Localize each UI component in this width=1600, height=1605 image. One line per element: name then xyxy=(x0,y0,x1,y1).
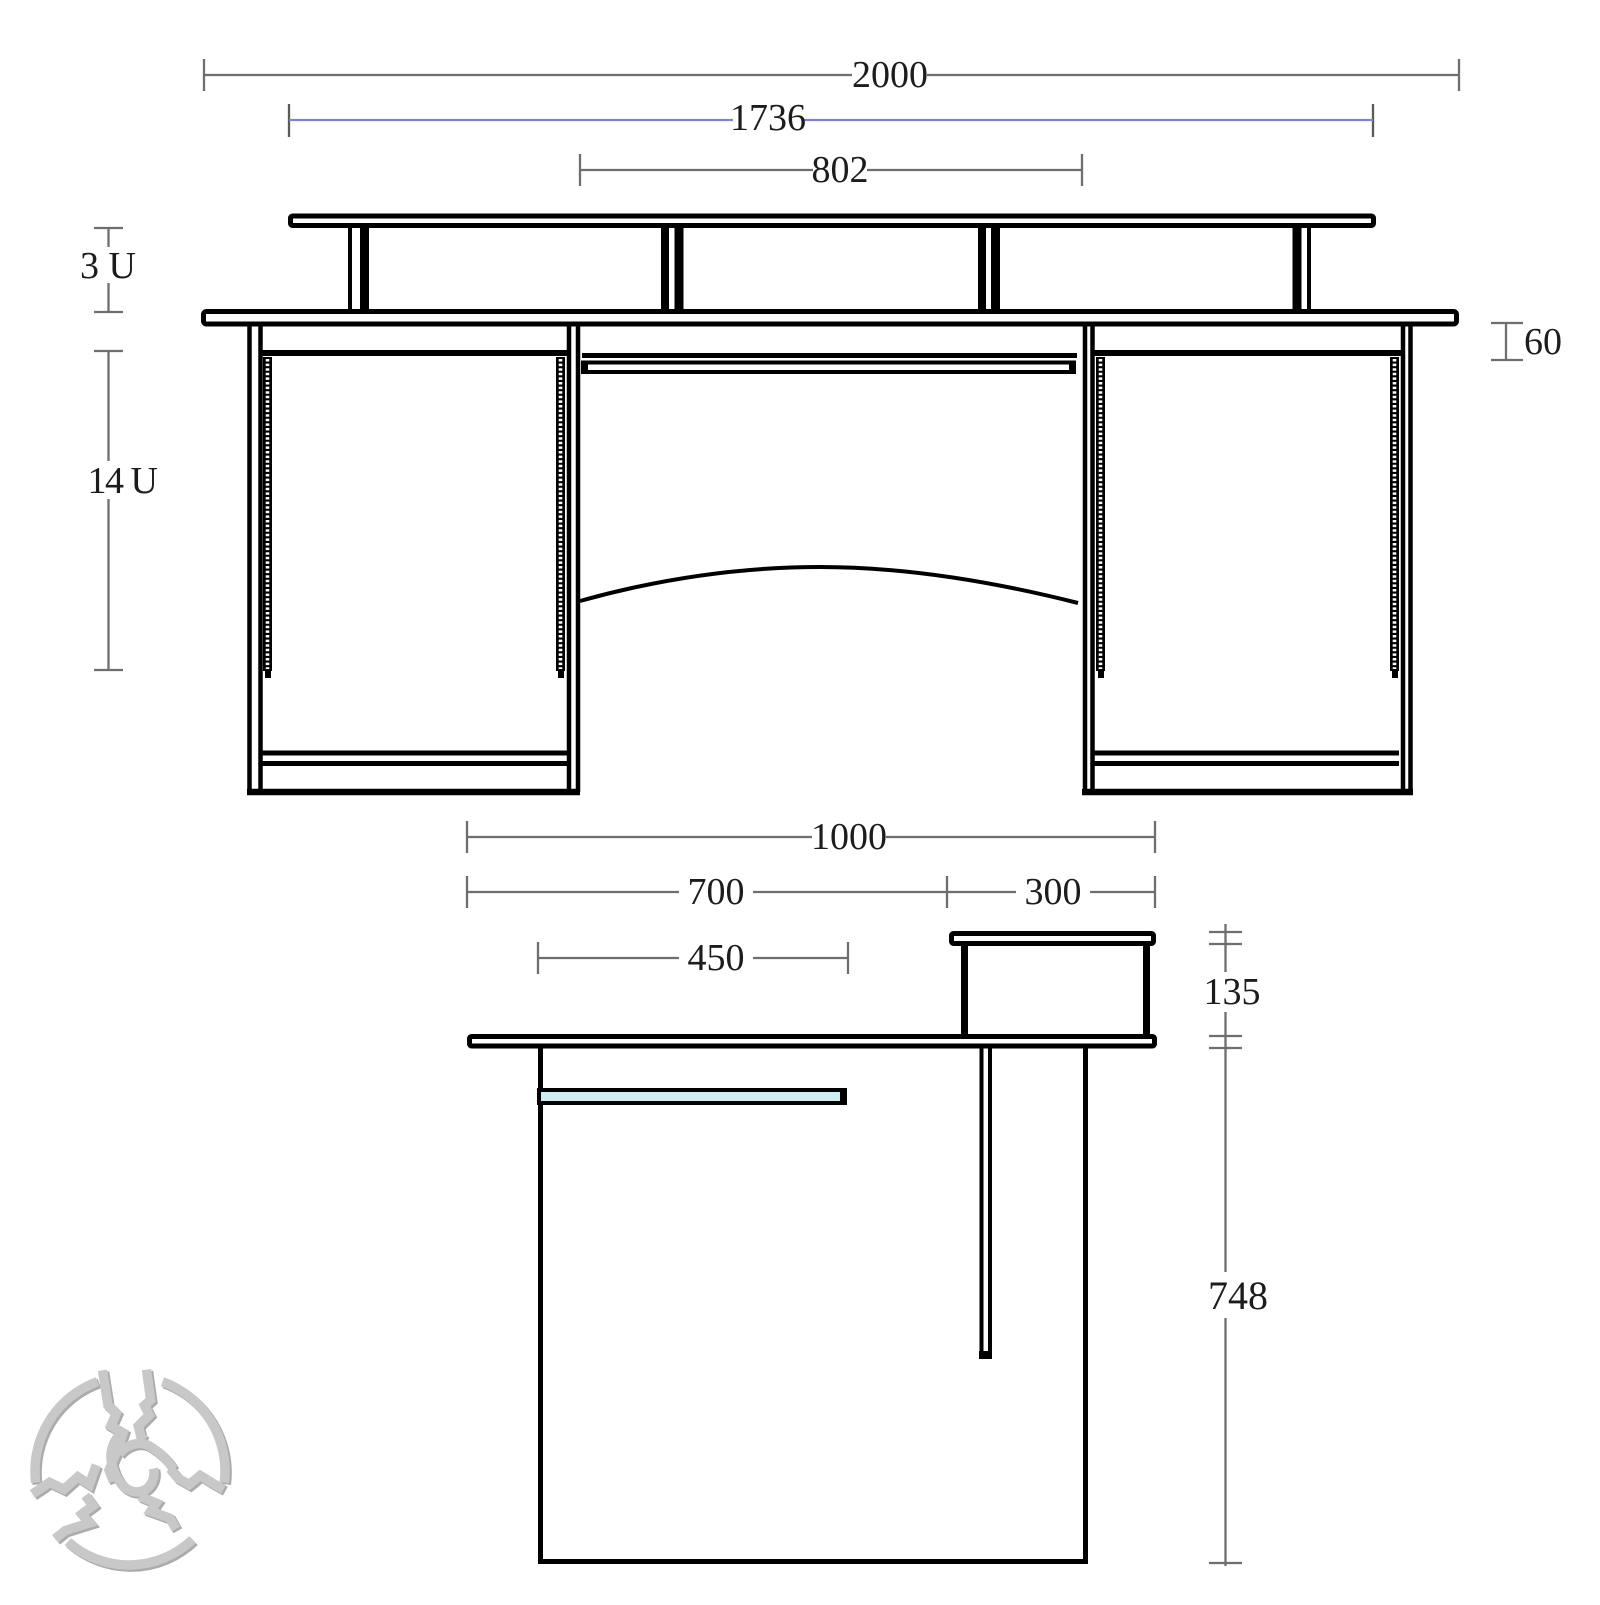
svg-text:1000: 1000 xyxy=(811,816,887,858)
svg-text:748: 748 xyxy=(1208,1273,1268,1318)
svg-text:450: 450 xyxy=(688,937,745,979)
svg-text:1736: 1736 xyxy=(730,97,806,139)
svg-text:3 U: 3 U xyxy=(80,245,136,287)
svg-text:700: 700 xyxy=(688,871,745,913)
svg-text:2000: 2000 xyxy=(852,54,928,96)
svg-text:802: 802 xyxy=(812,149,869,191)
svg-text:14 U: 14 U xyxy=(88,460,158,502)
svg-text:60: 60 xyxy=(1524,321,1562,363)
svg-text:135: 135 xyxy=(1204,971,1261,1013)
svg-text:300: 300 xyxy=(1025,871,1082,913)
